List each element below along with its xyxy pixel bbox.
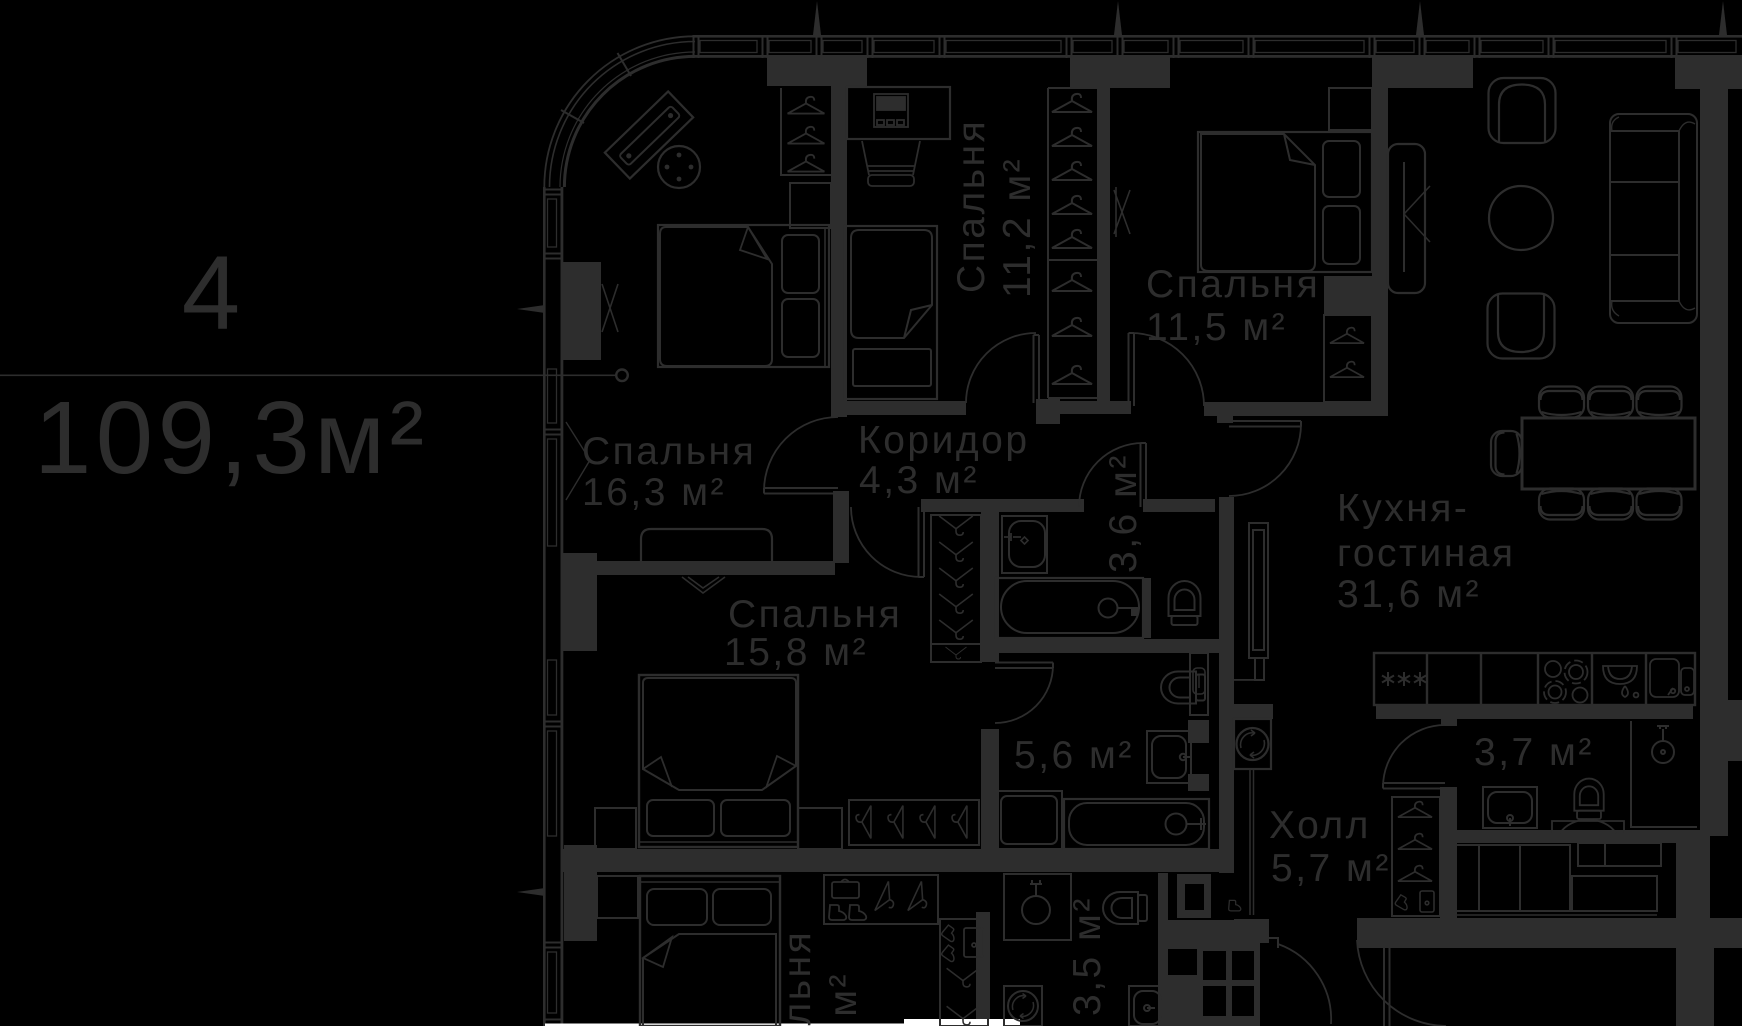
svg-text:Спальня: Спальня (950, 119, 993, 293)
svg-text:3,7 м²: 3,7 м² (1474, 731, 1594, 774)
svg-text:16,3 м²: 16,3 м² (582, 471, 726, 514)
svg-text:3,6 м²: 3,6 м² (1102, 453, 1145, 573)
svg-text:Кухня-: Кухня- (1337, 487, 1469, 530)
svg-text:Спальня: Спальня (582, 430, 756, 473)
svg-text:Коридор: Коридор (858, 419, 1030, 462)
svg-text:4: 4 (182, 235, 240, 352)
svg-text:3,5 м²: 3,5 м² (1066, 896, 1109, 1016)
svg-text:4,3 м²: 4,3 м² (859, 459, 979, 502)
svg-text:гостиная: гостиная (1337, 532, 1516, 575)
svg-text:12,8 м²: 12,8 м² (822, 972, 865, 1026)
svg-text:31,6 м²: 31,6 м² (1337, 573, 1481, 616)
svg-text:Спальня: Спальня (1146, 263, 1320, 306)
svg-text:5,7 м²: 5,7 м² (1271, 847, 1391, 890)
svg-text:5,6 м²: 5,6 м² (1014, 734, 1134, 777)
svg-text:11,5 м²: 11,5 м² (1146, 306, 1287, 349)
svg-text:15,8 м²: 15,8 м² (724, 631, 868, 674)
svg-text:Спальня: Спальня (776, 930, 819, 1026)
svg-text:Спальня: Спальня (728, 593, 902, 636)
svg-text:11,2 м²: 11,2 м² (996, 157, 1039, 298)
svg-text:109,3м²: 109,3м² (34, 380, 428, 495)
svg-text:Холл: Холл (1269, 804, 1371, 847)
